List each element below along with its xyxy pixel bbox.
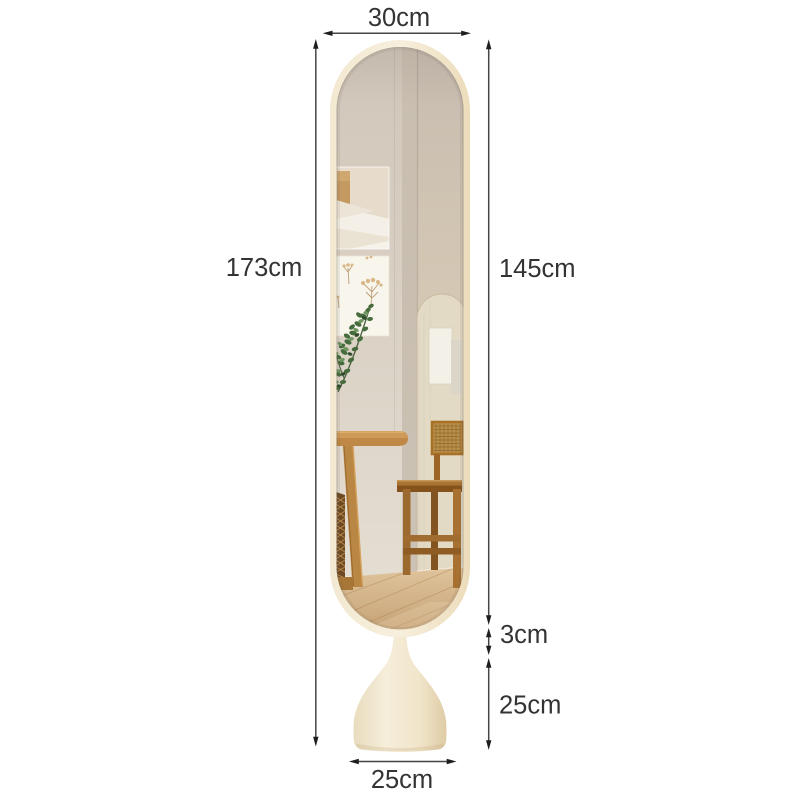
- svg-text:3cm: 3cm: [500, 621, 548, 649]
- svg-text:173cm: 173cm: [226, 254, 303, 282]
- svg-text:25cm: 25cm: [499, 692, 561, 720]
- svg-text:25cm: 25cm: [371, 766, 433, 794]
- svg-text:30cm: 30cm: [368, 4, 430, 32]
- svg-text:145cm: 145cm: [499, 255, 576, 283]
